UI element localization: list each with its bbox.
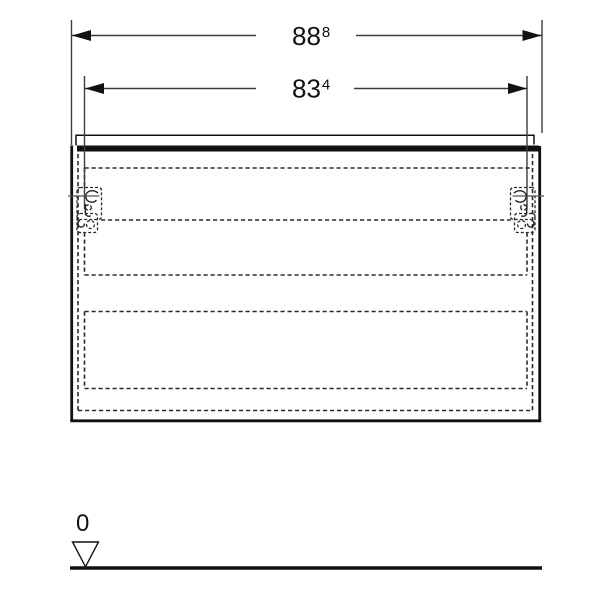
arrowhead-left-icon (85, 83, 104, 94)
arrowhead-right-icon (508, 83, 527, 94)
dimension-inner-value: 83 (292, 74, 321, 104)
cabinet-top-front-edge (77, 146, 539, 152)
arrowhead-left-icon (72, 30, 91, 41)
dimension-overall-value: 88 (292, 21, 321, 51)
cabinet-front-view (68, 135, 544, 422)
arrowhead-right-icon (523, 30, 542, 41)
drawing-page: 888 834 0 (0, 0, 600, 600)
drawing-canvas: 888 834 0 (0, 0, 600, 600)
dimension-inner-label: 834 (292, 74, 330, 104)
datum-label: 0 (76, 510, 89, 537)
dimension-inner-width: 834 (85, 74, 528, 210)
dimension-inner-superscript: 4 (322, 77, 330, 94)
ground-baseline: 0 (70, 510, 542, 568)
dimension-overall-superscript: 8 (322, 24, 330, 41)
datum-triangle-icon (73, 542, 99, 567)
dimension-overall-label: 888 (292, 21, 330, 51)
cabinet-top-rear-edge (76, 135, 534, 145)
